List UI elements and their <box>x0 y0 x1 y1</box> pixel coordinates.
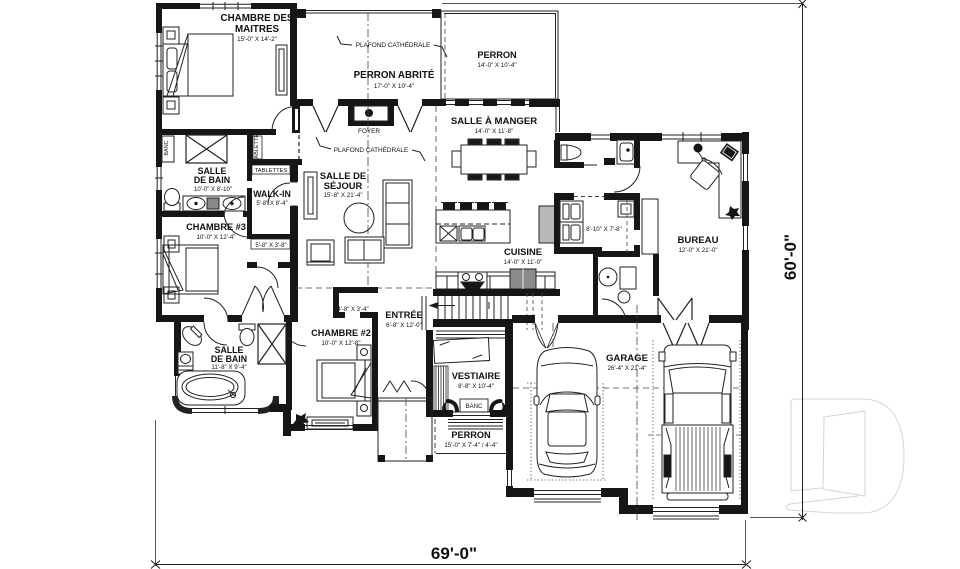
svg-text:14'-0" X 10'-4": 14'-0" X 10'-4" <box>477 62 516 69</box>
svg-text:DE BAIN: DE BAIN <box>211 354 247 364</box>
svg-text:10'-0" X 12'-8": 10'-0" X 12'-8" <box>321 340 360 347</box>
svg-text:14'-0" X 11'-0": 14'-0" X 11'-0" <box>504 259 543 266</box>
svg-text:5'-8" X 3'-8": 5'-8" X 3'-8" <box>255 243 286 249</box>
svg-text:CUISINE: CUISINE <box>504 246 542 257</box>
svg-text:SALLE À MANGER: SALLE À MANGER <box>451 115 537 127</box>
svg-text:8'-8" X 10'-4": 8'-8" X 10'-4" <box>458 383 494 390</box>
svg-text:PERRON: PERRON <box>477 50 517 60</box>
svg-text:GARAGE: GARAGE <box>606 353 649 364</box>
svg-text:15'-0" X 14'-2": 15'-0" X 14'-2" <box>237 36 277 43</box>
svg-text:15'-8" X 21'-4": 15'-8" X 21'-4" <box>323 192 362 199</box>
svg-text:PERRON ABRITÉ: PERRON ABRITÉ <box>354 69 435 81</box>
svg-text:60'-0": 60'-0" <box>781 234 800 280</box>
svg-text:10'-0" X 12'-4": 10'-0" X 12'-4" <box>196 234 235 241</box>
svg-text:69'-0": 69'-0" <box>431 544 477 563</box>
svg-text:PLAFOND CATHÉDRALE: PLAFOND CATHÉDRALE <box>356 40 430 49</box>
svg-text:SÉJOUR: SÉJOUR <box>324 180 363 191</box>
svg-text:TABLETTES: TABLETTES <box>255 168 288 174</box>
svg-text:BANC: BANC <box>466 404 483 410</box>
svg-text:14'-0" X 11'-8": 14'-0" X 11'-8" <box>475 128 514 135</box>
svg-text:TABLETTES: TABLETTES <box>254 130 260 161</box>
svg-text:CHAMBRE #2: CHAMBRE #2 <box>311 328 371 338</box>
svg-text:15'-0" X 7'-4" / 4'-4": 15'-0" X 7'-4" / 4'-4" <box>444 442 497 449</box>
svg-text:26'-4" X 21'-4": 26'-4" X 21'-4" <box>607 365 646 372</box>
svg-text:11'-8" X 9'-4": 11'-8" X 9'-4" <box>211 364 246 371</box>
svg-text:FOYER: FOYER <box>358 128 380 135</box>
svg-text:VESTIAIRE: VESTIAIRE <box>452 371 501 381</box>
svg-text:DE BAIN: DE BAIN <box>194 175 230 185</box>
svg-text:17'-0" X 10'-4": 17'-0" X 10'-4" <box>374 83 414 90</box>
svg-text:10'-0" X 8'-10": 10'-0" X 8'-10" <box>194 187 232 193</box>
svg-text:BUREAU: BUREAU <box>677 235 718 246</box>
svg-text:BANC: BANC <box>164 140 170 155</box>
svg-text:5'-8" X 8'-4": 5'-8" X 8'-4" <box>256 201 287 207</box>
svg-text:PLAFOND CATHÉDRALE: PLAFOND CATHÉDRALE <box>334 145 408 154</box>
svg-text:CHAMBRE DES: CHAMBRE DES <box>221 13 294 24</box>
svg-text:12'-0" X 21'-0": 12'-0" X 21'-0" <box>678 247 717 254</box>
svg-text:PERRON: PERRON <box>451 430 491 440</box>
svg-text:ENTRÉE: ENTRÉE <box>385 309 422 320</box>
svg-text:4'-8" X 3'-4": 4'-8" X 3'-4" <box>337 307 368 313</box>
svg-text:CHAMBRE #3: CHAMBRE #3 <box>186 222 246 232</box>
svg-text:6'-8" X 12'-0": 6'-8" X 12'-0" <box>386 322 422 329</box>
svg-text:8'-10" X 7'-8": 8'-10" X 7'-8" <box>586 226 622 233</box>
svg-text:WALK-IN: WALK-IN <box>253 189 291 199</box>
svg-text:MAITRES: MAITRES <box>235 24 280 35</box>
